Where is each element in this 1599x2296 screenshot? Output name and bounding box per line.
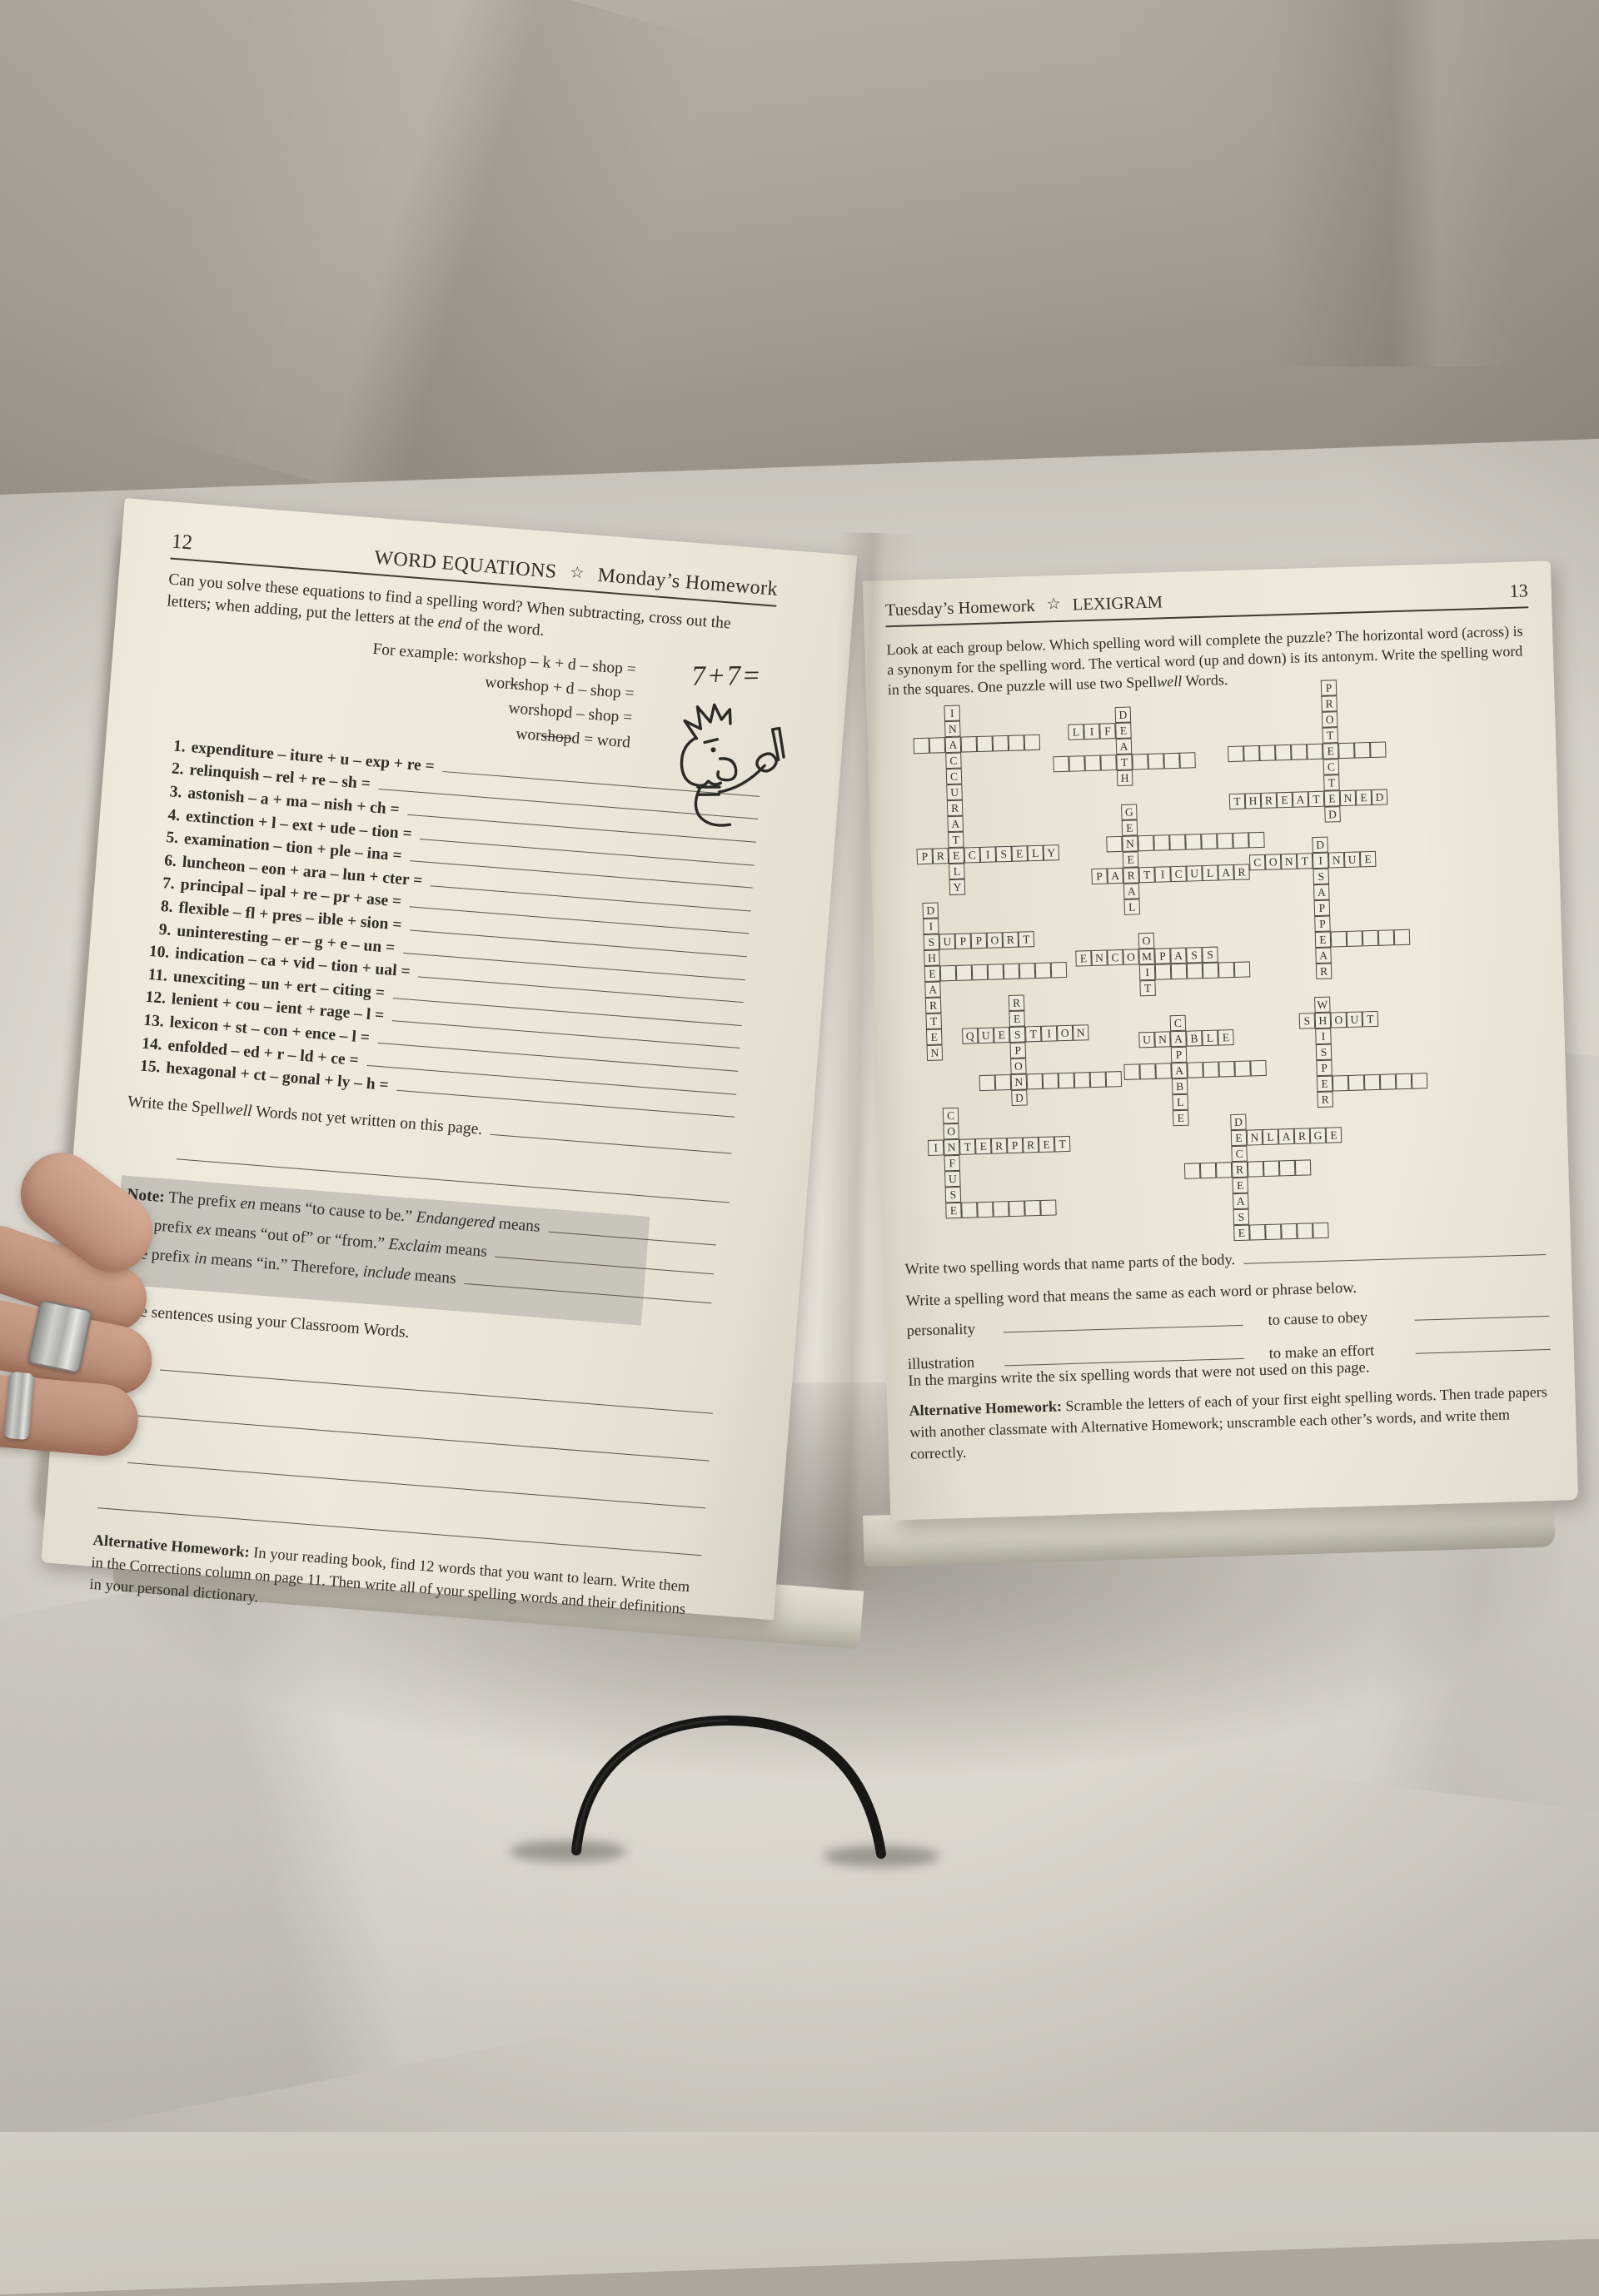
puzzle-cell-blank bbox=[1378, 929, 1395, 946]
doodle-block: 7+7= bbox=[640, 655, 834, 864]
puzzle-cell-blank bbox=[1295, 1159, 1312, 1176]
puzzle-cell-letter: S bbox=[996, 846, 1013, 863]
equation-number: 8. bbox=[142, 896, 174, 917]
puzzle-cell-letter: S bbox=[1009, 1026, 1026, 1043]
puzzle-cell-letter: L bbox=[1202, 1030, 1218, 1047]
puzzle-cell-letter: O bbox=[1057, 1025, 1073, 1042]
puzzle-cell-letter: Y bbox=[949, 879, 966, 896]
puzzle-cell-letter: D bbox=[1324, 806, 1341, 823]
equation-number: 12. bbox=[135, 988, 167, 1009]
puzzle-cell-blank bbox=[1217, 833, 1233, 849]
puzzle-cell-letter: E bbox=[1173, 1110, 1189, 1127]
puzzle-cell-letter: W bbox=[1314, 997, 1331, 1014]
puzzle-cell-blank bbox=[1139, 1063, 1156, 1080]
puzzle-cell-blank bbox=[1106, 1071, 1123, 1088]
puzzle-cell-letter: S bbox=[1186, 947, 1203, 964]
write-line bbox=[1415, 1316, 1550, 1321]
puzzle-cell-letter: T bbox=[948, 832, 964, 849]
stand-shadow bbox=[823, 1845, 939, 1867]
puzzle-cell-blank bbox=[995, 1074, 1012, 1091]
equation-number: 13. bbox=[133, 1011, 165, 1032]
puzzle-cell-letter: E bbox=[949, 848, 965, 864]
puzzle-cell-blank bbox=[1338, 743, 1355, 760]
puzzle-cell-letter: T bbox=[1297, 853, 1313, 869]
puzzle-cell-letter: T bbox=[1308, 791, 1325, 808]
puzzle-cell-blank bbox=[1009, 1201, 1025, 1218]
puzzle-cell-letter: L bbox=[1027, 845, 1044, 862]
puzzle-cell-blank bbox=[1163, 753, 1180, 769]
puzzle-cell-letter: C bbox=[946, 769, 963, 785]
puzzle-cell-letter: E bbox=[1277, 792, 1293, 809]
puzzle-cell-letter: E bbox=[1356, 789, 1372, 806]
equation-number: 6. bbox=[146, 850, 177, 871]
puzzle-cell-letter: P bbox=[1321, 680, 1337, 696]
equation-number: 4. bbox=[149, 804, 181, 825]
pair-left-label: personality bbox=[906, 1321, 997, 1341]
puzzle-cell-letter: I bbox=[928, 1139, 944, 1156]
puzzle-cell-letter: D bbox=[1011, 1089, 1028, 1106]
puzzle-cell-letter: R bbox=[1294, 1128, 1311, 1144]
text-segment: in bbox=[193, 1249, 207, 1268]
text-segment: shop bbox=[540, 727, 572, 747]
puzzle-cell-letter: L bbox=[1263, 1128, 1279, 1145]
puzzle-cell-blank bbox=[1059, 1073, 1075, 1089]
puzzle-cell-letter: D bbox=[1115, 707, 1132, 724]
equation-number: 9. bbox=[141, 919, 172, 940]
puzzle-cell-letter: I bbox=[1041, 1025, 1058, 1042]
puzzle-cell-blank bbox=[1004, 964, 1020, 980]
equation-number: 15. bbox=[130, 1057, 162, 1078]
puzzle-cell-letter: T bbox=[1139, 980, 1156, 997]
chapter-title: WORD EQUATIONS bbox=[373, 547, 557, 584]
puzzle-cell-letter: E bbox=[945, 1203, 962, 1219]
prefix-note-box: Note: The prefix en means “to cause to b… bbox=[113, 1175, 650, 1325]
puzzle-cell-blank bbox=[1123, 1063, 1140, 1080]
puzzle-cell-blank bbox=[1035, 963, 1052, 979]
puzzle-cell-letter: N bbox=[1091, 949, 1108, 966]
stand-shadow bbox=[510, 1840, 626, 1862]
puzzle-cell-blank bbox=[1179, 752, 1196, 769]
puzzle-cell-blank bbox=[1024, 1200, 1041, 1217]
puzzle-cell-letter: L bbox=[949, 864, 965, 880]
puzzle-cell-blank bbox=[1354, 742, 1371, 759]
puzzle-cell-letter: A bbox=[1170, 948, 1187, 964]
text-segment: wor bbox=[516, 725, 542, 744]
puzzle-cell-letter: T bbox=[925, 1013, 942, 1029]
puzzle-cell-letter: G bbox=[1121, 804, 1138, 820]
text-segment: well bbox=[224, 1100, 252, 1119]
puzzle-cell-blank bbox=[1024, 735, 1041, 751]
puzzle-cell-blank bbox=[940, 965, 957, 982]
puzzle-cell-letter: R bbox=[947, 800, 964, 817]
puzzle-cell-blank bbox=[993, 1201, 1009, 1218]
puzzle-cell-letter: T bbox=[1323, 774, 1340, 791]
puzzle-cell-letter: A bbox=[924, 981, 941, 998]
puzzle-cell-blank bbox=[1200, 1163, 1217, 1179]
puzzle-cell-letter: R bbox=[1023, 1137, 1039, 1153]
puzzle-cell-letter: T bbox=[1362, 1011, 1379, 1028]
puzzle-cell-letter: I bbox=[1154, 866, 1171, 883]
puzzle-cell-letter: E bbox=[1317, 1076, 1333, 1093]
puzzle-cell-letter: I bbox=[980, 846, 997, 863]
puzzle-cell-blank bbox=[1412, 1073, 1428, 1089]
puzzle-cell-blank bbox=[1040, 1199, 1057, 1216]
puzzle-cell-letter: B bbox=[1172, 1078, 1188, 1095]
puzzle-cell-letter: T bbox=[1019, 931, 1035, 948]
puzzle-cell-letter: Q bbox=[962, 1028, 979, 1044]
puzzle-cell-letter: E bbox=[1039, 1136, 1055, 1153]
puzzle-cell-letter: P bbox=[1316, 1060, 1332, 1077]
puzzle-cell-letter: R bbox=[1316, 964, 1332, 980]
puzzle-cell-blank bbox=[1084, 755, 1101, 772]
puzzle-cell-letter: P bbox=[1314, 916, 1331, 933]
text-segment: wor bbox=[485, 674, 511, 693]
puzzle-cell-letter: H bbox=[1117, 769, 1133, 786]
puzzle-cell-blank bbox=[1331, 931, 1347, 948]
text-segment: d = word bbox=[571, 730, 631, 751]
puzzle-cell-blank bbox=[1106, 836, 1123, 853]
text-segment: means bbox=[441, 1239, 487, 1260]
puzzle-cell-blank bbox=[1281, 1223, 1298, 1240]
puzzle-cell-letter: C bbox=[1249, 854, 1266, 871]
puzzle-cell-blank bbox=[1100, 755, 1117, 771]
puzzle-cell-letter: P bbox=[1007, 1138, 1024, 1154]
puzzle-cell-blank bbox=[1187, 963, 1203, 979]
puzzle-cell-letter: E bbox=[1233, 1225, 1250, 1242]
puzzle-cell-letter: P bbox=[917, 849, 934, 865]
puzzle-cell-letter: E bbox=[1360, 851, 1377, 868]
puzzle-cell-letter: F bbox=[1099, 723, 1116, 740]
puzzle-cell-blank bbox=[1297, 1223, 1313, 1239]
puzzle-cell-blank bbox=[1380, 1073, 1397, 1090]
puzzle-cell-letter: U bbox=[1138, 1032, 1155, 1048]
puzzle-cell-letter: E bbox=[1012, 845, 1029, 862]
puzzle-cell-blank bbox=[979, 1075, 996, 1092]
puzzle-cell-letter: E bbox=[1075, 950, 1092, 967]
puzzle-cell-blank bbox=[1155, 964, 1172, 980]
puzzle-cell-letter: U bbox=[978, 1028, 994, 1044]
puzzle-cell-letter: R bbox=[1009, 994, 1025, 1011]
write-line bbox=[548, 1231, 716, 1245]
sentence-lines bbox=[96, 1343, 715, 1556]
pair-right-label: to cause to obey bbox=[1268, 1308, 1408, 1330]
puzzle-cell-blank bbox=[1348, 1074, 1365, 1091]
puzzle-cell-letter: E bbox=[1122, 819, 1138, 836]
puzzle-cell-blank bbox=[1043, 1073, 1059, 1089]
puzzle-cell-blank bbox=[1132, 754, 1148, 770]
puzzle-cell-letter: C bbox=[943, 1108, 959, 1124]
puzzle-cell-letter: A bbox=[1218, 864, 1234, 881]
text-segment: Write the Spell bbox=[127, 1093, 226, 1118]
puzzle-cell-letter: R bbox=[1123, 867, 1139, 884]
puzzle-cell-blank bbox=[1019, 963, 1036, 979]
puzzle-cell-letter: R bbox=[925, 997, 942, 1014]
puzzle-cell-blank bbox=[1265, 1223, 1282, 1240]
puzzle-cell-letter: R bbox=[1233, 864, 1250, 880]
text-segment: en bbox=[240, 1194, 257, 1213]
puzzle-cell-letter: C bbox=[1323, 759, 1340, 775]
puzzle-cell-blank bbox=[1279, 1160, 1296, 1177]
puzzle-cell-letter: O bbox=[1331, 1012, 1347, 1028]
puzzle-cell-blank bbox=[1234, 1060, 1251, 1077]
text-segment: Endangered bbox=[416, 1208, 496, 1232]
puzzle-cell-letter: O bbox=[1265, 854, 1282, 870]
puzzle-cell-letter: E bbox=[975, 1138, 992, 1155]
puzzle-cell-letter: A bbox=[1233, 1193, 1249, 1210]
puzzle-cell-blank bbox=[1009, 735, 1025, 751]
puzzle-cell-letter: D bbox=[1312, 837, 1328, 854]
puzzle-cell-letter: I bbox=[1315, 1028, 1332, 1045]
text-segment: Exclaim bbox=[388, 1235, 442, 1257]
puzzle-cell-letter: I bbox=[923, 918, 939, 934]
puzzle-cell-blank bbox=[929, 737, 946, 754]
puzzle-cell-letter: O bbox=[1138, 933, 1155, 949]
puzzle-cell-letter: O bbox=[943, 1123, 959, 1140]
puzzle-cell-letter: I bbox=[944, 705, 960, 722]
puzzle-cell-blank bbox=[1243, 745, 1260, 762]
puzzle-cell-blank bbox=[961, 1202, 978, 1218]
puzzle-cell-letter: N bbox=[944, 1139, 960, 1156]
text-segment: Words not yet written on this page. bbox=[252, 1103, 483, 1138]
puzzle-cell-blank bbox=[1184, 1163, 1201, 1179]
puzzle-cell-blank bbox=[914, 738, 930, 755]
puzzle-cell-blank bbox=[1234, 961, 1251, 978]
puzzle-cell-letter: B bbox=[1186, 1030, 1203, 1047]
equation-number: 14. bbox=[132, 1033, 163, 1054]
puzzle-cell-blank bbox=[1187, 1062, 1203, 1078]
puzzle-cell-letter: E bbox=[926, 1028, 943, 1045]
puzzle-cell-letter: D bbox=[922, 902, 939, 919]
puzzle-cell-blank bbox=[1090, 1072, 1107, 1088]
equation-number: 1. bbox=[155, 736, 187, 757]
puzzle-cell-letter: L bbox=[1202, 865, 1218, 882]
text-segment: of the word. bbox=[461, 615, 545, 640]
puzzle-cell-letter: A bbox=[947, 816, 964, 833]
text-segment: ex bbox=[196, 1220, 212, 1238]
puzzle-cell-letter: E bbox=[1315, 932, 1332, 949]
puzzle-cell-letter: U bbox=[1344, 851, 1361, 868]
puzzle-cell-blank bbox=[1185, 834, 1202, 850]
write-line bbox=[1416, 1349, 1551, 1354]
puzzle-cell-blank bbox=[1233, 832, 1249, 849]
puzzle-cell-blank bbox=[1201, 834, 1218, 850]
puzzle-cell-letter: L bbox=[1172, 1094, 1188, 1111]
puzzle-cell-letter: S bbox=[945, 1187, 962, 1203]
puzzle-cell-letter: T bbox=[959, 1138, 976, 1155]
puzzle-cell-letter: A bbox=[1278, 1128, 1295, 1145]
puzzle-cell-letter: T bbox=[1025, 1026, 1042, 1043]
puzzle-cell-letter: A bbox=[1171, 1063, 1188, 1079]
puzzle-cell-letter: A bbox=[1116, 739, 1133, 755]
puzzle-cell-blank bbox=[1362, 930, 1379, 947]
puzzle-cell-letter: Y bbox=[1043, 844, 1059, 861]
puzzle-cell-letter: R bbox=[1232, 1162, 1248, 1178]
puzzle-cell-blank bbox=[1218, 962, 1235, 979]
puzzle-cell-blank bbox=[1068, 755, 1085, 772]
puzzle-cell-letter: E bbox=[1232, 1178, 1248, 1194]
puzzle-cell-letter: E bbox=[1009, 1010, 1025, 1027]
puzzle-cell-blank bbox=[1291, 744, 1308, 760]
puzzle-cell-letter: C bbox=[1107, 949, 1123, 966]
write-line bbox=[495, 1256, 714, 1274]
puzzle-cell-blank bbox=[1171, 964, 1188, 980]
puzzle-cell-blank bbox=[961, 736, 978, 753]
puzzle-cell-blank bbox=[1249, 1224, 1266, 1241]
puzzle-cell-letter: N bbox=[927, 1044, 944, 1061]
puzzle-cell-letter: T bbox=[1322, 727, 1338, 744]
puzzle-cell-letter: S bbox=[1316, 1044, 1332, 1061]
puzzle-cell-letter: N bbox=[1247, 1129, 1263, 1146]
puzzle-cell-blank bbox=[1250, 1060, 1267, 1077]
puzzle-cell-blank bbox=[1364, 1074, 1381, 1091]
puzzle-cell-letter: C bbox=[1231, 1146, 1248, 1163]
puzzle-cell-letter: I bbox=[1313, 853, 1329, 869]
puzzle-cell-letter: H bbox=[1245, 793, 1262, 809]
puzzle-cell-letter: A bbox=[1313, 884, 1330, 901]
puzzle-cell-letter: S bbox=[924, 934, 940, 950]
puzzle-cell-letter: N bbox=[1073, 1024, 1089, 1041]
puzzle-cell-blank bbox=[1307, 744, 1323, 760]
puzzle-cell-letter: T bbox=[1054, 1136, 1071, 1153]
puzzle-cell-letter: H bbox=[1315, 1013, 1332, 1029]
puzzle-cell-letter: E bbox=[924, 965, 941, 982]
puzzle-cell-letter: U bbox=[944, 1171, 961, 1188]
puzzle-cell-letter: E bbox=[1115, 723, 1132, 740]
puzzle-cell-letter: U bbox=[1186, 865, 1203, 882]
puzzle-cell-letter: I bbox=[1139, 964, 1156, 981]
puzzle-cell-letter: E bbox=[994, 1027, 1010, 1043]
puzzle-cell-blank bbox=[1216, 1162, 1233, 1178]
puzzle-cell-letter: A bbox=[945, 737, 962, 754]
puzzle-cell-blank bbox=[1051, 962, 1068, 979]
write-line bbox=[1004, 1325, 1243, 1333]
puzzle-cell-letter: R bbox=[1321, 695, 1337, 712]
puzzle-cell-letter: H bbox=[924, 949, 940, 966]
puzzle-cell-letter: M bbox=[1138, 949, 1155, 965]
puzzle-cell-letter: L bbox=[1123, 899, 1140, 915]
equation-number: 2. bbox=[153, 759, 185, 779]
puzzle-cell-blank bbox=[1313, 1223, 1329, 1239]
puzzle-cell-blank bbox=[1148, 753, 1164, 769]
puzzle-cell-letter: P bbox=[1091, 868, 1108, 884]
puzzle-cell-letter: P bbox=[955, 933, 972, 949]
puzzle-cell-blank bbox=[1169, 834, 1186, 851]
puzzle-cell-letter: C bbox=[945, 753, 962, 769]
puzzle-cell-letter: N bbox=[1281, 854, 1298, 870]
puzzle-cell-letter: P bbox=[1314, 900, 1331, 917]
puzzle-cell-letter: R bbox=[1317, 1092, 1333, 1108]
puzzle-cell-letter: O bbox=[1010, 1058, 1027, 1074]
puzzle-cell-letter: E bbox=[1323, 743, 1339, 760]
puzzle-cell-blank bbox=[1259, 745, 1276, 761]
puzzle-cell-letter: E bbox=[1326, 1127, 1342, 1143]
puzzle-cell-blank bbox=[1155, 1063, 1172, 1079]
puzzle-cell-blank bbox=[1138, 835, 1154, 852]
puzzle-cell-letter: E bbox=[1231, 1130, 1248, 1147]
text-segment: include bbox=[362, 1263, 411, 1283]
puzzle-cell-blank bbox=[1248, 1161, 1264, 1178]
puzzle-cell-letter: A bbox=[1315, 948, 1332, 964]
puzzle-cell-letter: U bbox=[1347, 1011, 1363, 1028]
puzzle-cell-blank bbox=[1370, 741, 1387, 758]
puzzle-cell-letter: N bbox=[944, 721, 961, 738]
puzzle-cell-letter: S bbox=[1233, 1209, 1250, 1226]
puzzle-cell-letter: L bbox=[1068, 724, 1084, 740]
puzzle-cell-letter: A bbox=[1107, 868, 1123, 884]
puzzle-cell-letter: N bbox=[1011, 1073, 1028, 1090]
text-segment: means “to cause to be.” bbox=[255, 1196, 416, 1226]
puzzle-cell-letter: A bbox=[1293, 791, 1309, 808]
equation-number: 11. bbox=[137, 965, 168, 986]
puzzle-cell-letter: F bbox=[944, 1155, 960, 1172]
puzzle-cell-letter: U bbox=[939, 934, 956, 950]
puzzle-cell-letter: S bbox=[1313, 869, 1329, 885]
text-segment: Alternative Homework: bbox=[909, 1397, 1062, 1418]
puzzle-cell-blank bbox=[1347, 930, 1363, 947]
synonym-pair-row: personalityto cause to obey bbox=[906, 1304, 1549, 1345]
puzzle-cell-letter: R bbox=[933, 848, 949, 864]
puzzle-cell-blank bbox=[1203, 963, 1219, 979]
puzzle-cell-blank bbox=[1275, 745, 1292, 761]
puzzle-cell-letter: A bbox=[1170, 1031, 1187, 1048]
puzzle-cell-letter: P bbox=[1010, 1042, 1027, 1058]
puzzle-cell-letter: E bbox=[1218, 1029, 1234, 1046]
puzzle-cell-blank bbox=[1248, 832, 1265, 849]
text-segment: The prefix bbox=[164, 1188, 242, 1212]
text-segment: means bbox=[410, 1267, 456, 1287]
puzzle-cell-letter: N bbox=[1328, 852, 1345, 869]
puzzle-cell-blank bbox=[1153, 834, 1170, 851]
puzzle-cell-blank bbox=[1228, 746, 1244, 763]
puzzle-cell-letter: N bbox=[1122, 835, 1138, 852]
puzzle-cell-blank bbox=[988, 964, 1004, 980]
puzzle-cell-letter: O bbox=[1322, 711, 1338, 728]
puzzle-cell-letter: N bbox=[1340, 790, 1357, 807]
day-subtitle: Monday’s Homework bbox=[597, 565, 779, 601]
puzzle-cell-blank bbox=[956, 964, 973, 981]
puzzle-cell-letter: O bbox=[1123, 949, 1139, 965]
puzzle-cell-letter: D bbox=[1372, 789, 1388, 805]
text-segment: end bbox=[437, 614, 462, 633]
puzzle-cell-letter: T bbox=[1229, 794, 1246, 810]
puzzle-cell-letter: O bbox=[987, 932, 1004, 949]
puzzle-cell-blank bbox=[1053, 756, 1069, 773]
puzzle-cell-letter: P bbox=[971, 933, 988, 949]
puzzle-cell-letter: S bbox=[1202, 947, 1218, 964]
puzzle-cell-blank bbox=[1396, 1073, 1412, 1090]
puzzle-cell-letter: R bbox=[1003, 932, 1019, 949]
puzzle-cell-letter: N bbox=[1154, 1031, 1171, 1048]
write-line bbox=[491, 1134, 732, 1154]
equation-number: 5. bbox=[147, 828, 179, 849]
puzzle-cell-letter: U bbox=[946, 784, 963, 801]
equation-number: 7. bbox=[144, 874, 176, 894]
puzzle-cell-blank bbox=[972, 964, 989, 981]
page-number-12: 12 bbox=[171, 530, 193, 555]
puzzle-cell-blank bbox=[1394, 929, 1411, 946]
puzzle-cell-letter: E bbox=[1324, 790, 1341, 807]
puzzle-cell-blank bbox=[1203, 1062, 1219, 1078]
puzzle-cell-letter: G bbox=[1310, 1128, 1327, 1144]
right-page: Tuesday’s Homework ☆ LEXIGRAM 13 Look at… bbox=[863, 560, 1578, 1520]
puzzle-cell-letter: T bbox=[1138, 867, 1155, 884]
equation-number: 3. bbox=[152, 782, 183, 803]
left-page: 12 WORD EQUATIONS ☆ Monday’s Homework Ca… bbox=[41, 498, 857, 1620]
puzzle-cell-letter: R bbox=[991, 1138, 1008, 1154]
puzzle-cell-letter: P bbox=[1171, 1047, 1188, 1063]
puzzle-cell-letter: C bbox=[1170, 866, 1187, 883]
puzzle-cell-blank bbox=[1218, 1061, 1235, 1078]
